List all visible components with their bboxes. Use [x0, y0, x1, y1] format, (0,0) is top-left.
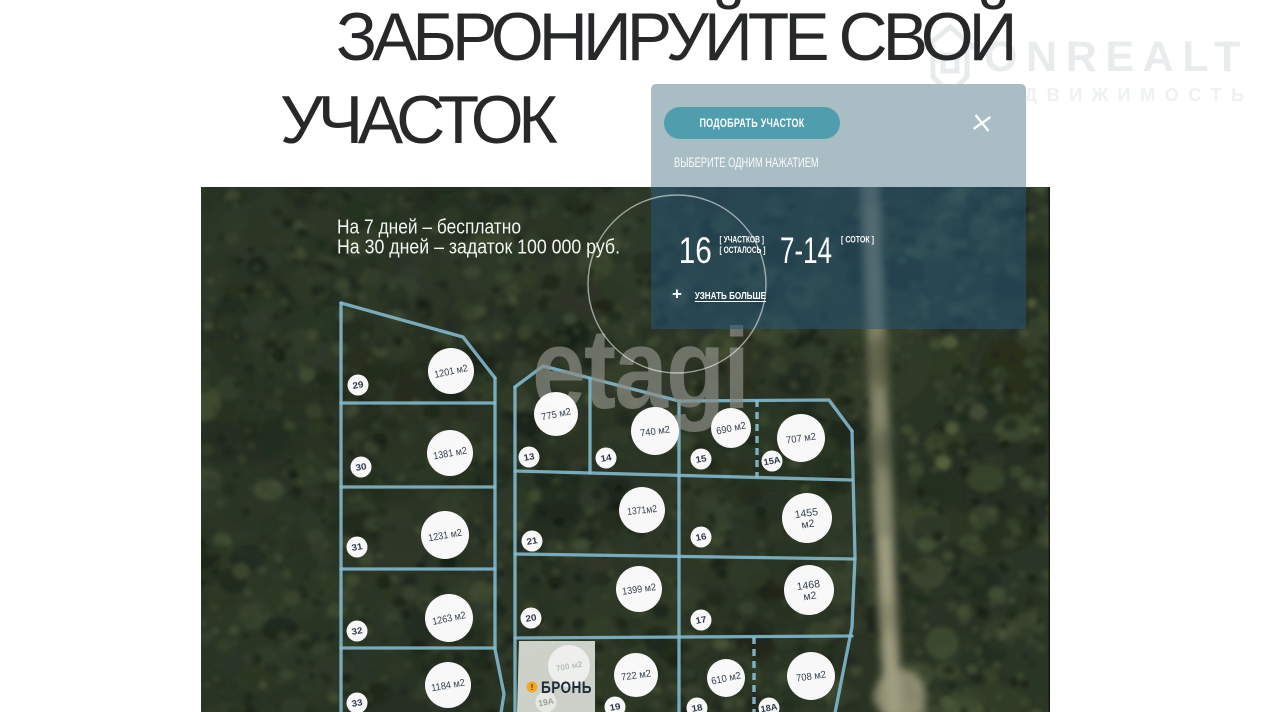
svg-text:7-14: 7-14 — [780, 230, 832, 271]
svg-text:!: ! — [531, 683, 534, 692]
svg-text:17: 17 — [695, 614, 708, 626]
svg-text:16: 16 — [679, 230, 712, 271]
svg-text:29: 29 — [352, 379, 365, 391]
svg-text:На 7 дней – бесплатно: На 7 дней – бесплатно — [337, 217, 521, 239]
svg-text:13: 13 — [523, 451, 536, 463]
svg-text:14: 14 — [600, 452, 613, 464]
svg-text:[ СОТОК ]: [ СОТОК ] — [841, 235, 874, 245]
svg-text:м2: м2 — [801, 518, 816, 532]
svg-text:16: 16 — [695, 531, 708, 543]
svg-text:19: 19 — [609, 701, 622, 712]
svg-text:32: 32 — [351, 625, 364, 637]
svg-text:УЗНАТЬ БОЛЬШЕ: УЗНАТЬ БОЛЬШЕ — [695, 290, 766, 302]
svg-text:ONREALT: ONREALT — [984, 33, 1249, 81]
svg-text:15: 15 — [695, 453, 708, 465]
svg-text:[ ОСТАЛОСЬ ]: [ ОСТАЛОСЬ ] — [720, 245, 766, 255]
svg-text:33: 33 — [351, 697, 364, 709]
svg-text:18A: 18A — [760, 702, 779, 712]
svg-text:21: 21 — [526, 535, 539, 547]
svg-text:БРОНЬ: БРОНЬ — [541, 679, 592, 697]
svg-text:18: 18 — [691, 702, 704, 712]
svg-text:20: 20 — [525, 612, 538, 624]
svg-text:31: 31 — [351, 541, 364, 553]
svg-text:[ УЧАСТКОВ ]: [ УЧАСТКОВ ] — [720, 235, 765, 245]
svg-text:м2: м2 — [803, 590, 818, 604]
svg-text:30: 30 — [355, 461, 368, 473]
svg-text:+: + — [672, 285, 682, 304]
svg-text:На 30 дней – задаток 100 000 р: На 30 дней – задаток 100 000 руб. — [337, 237, 620, 259]
